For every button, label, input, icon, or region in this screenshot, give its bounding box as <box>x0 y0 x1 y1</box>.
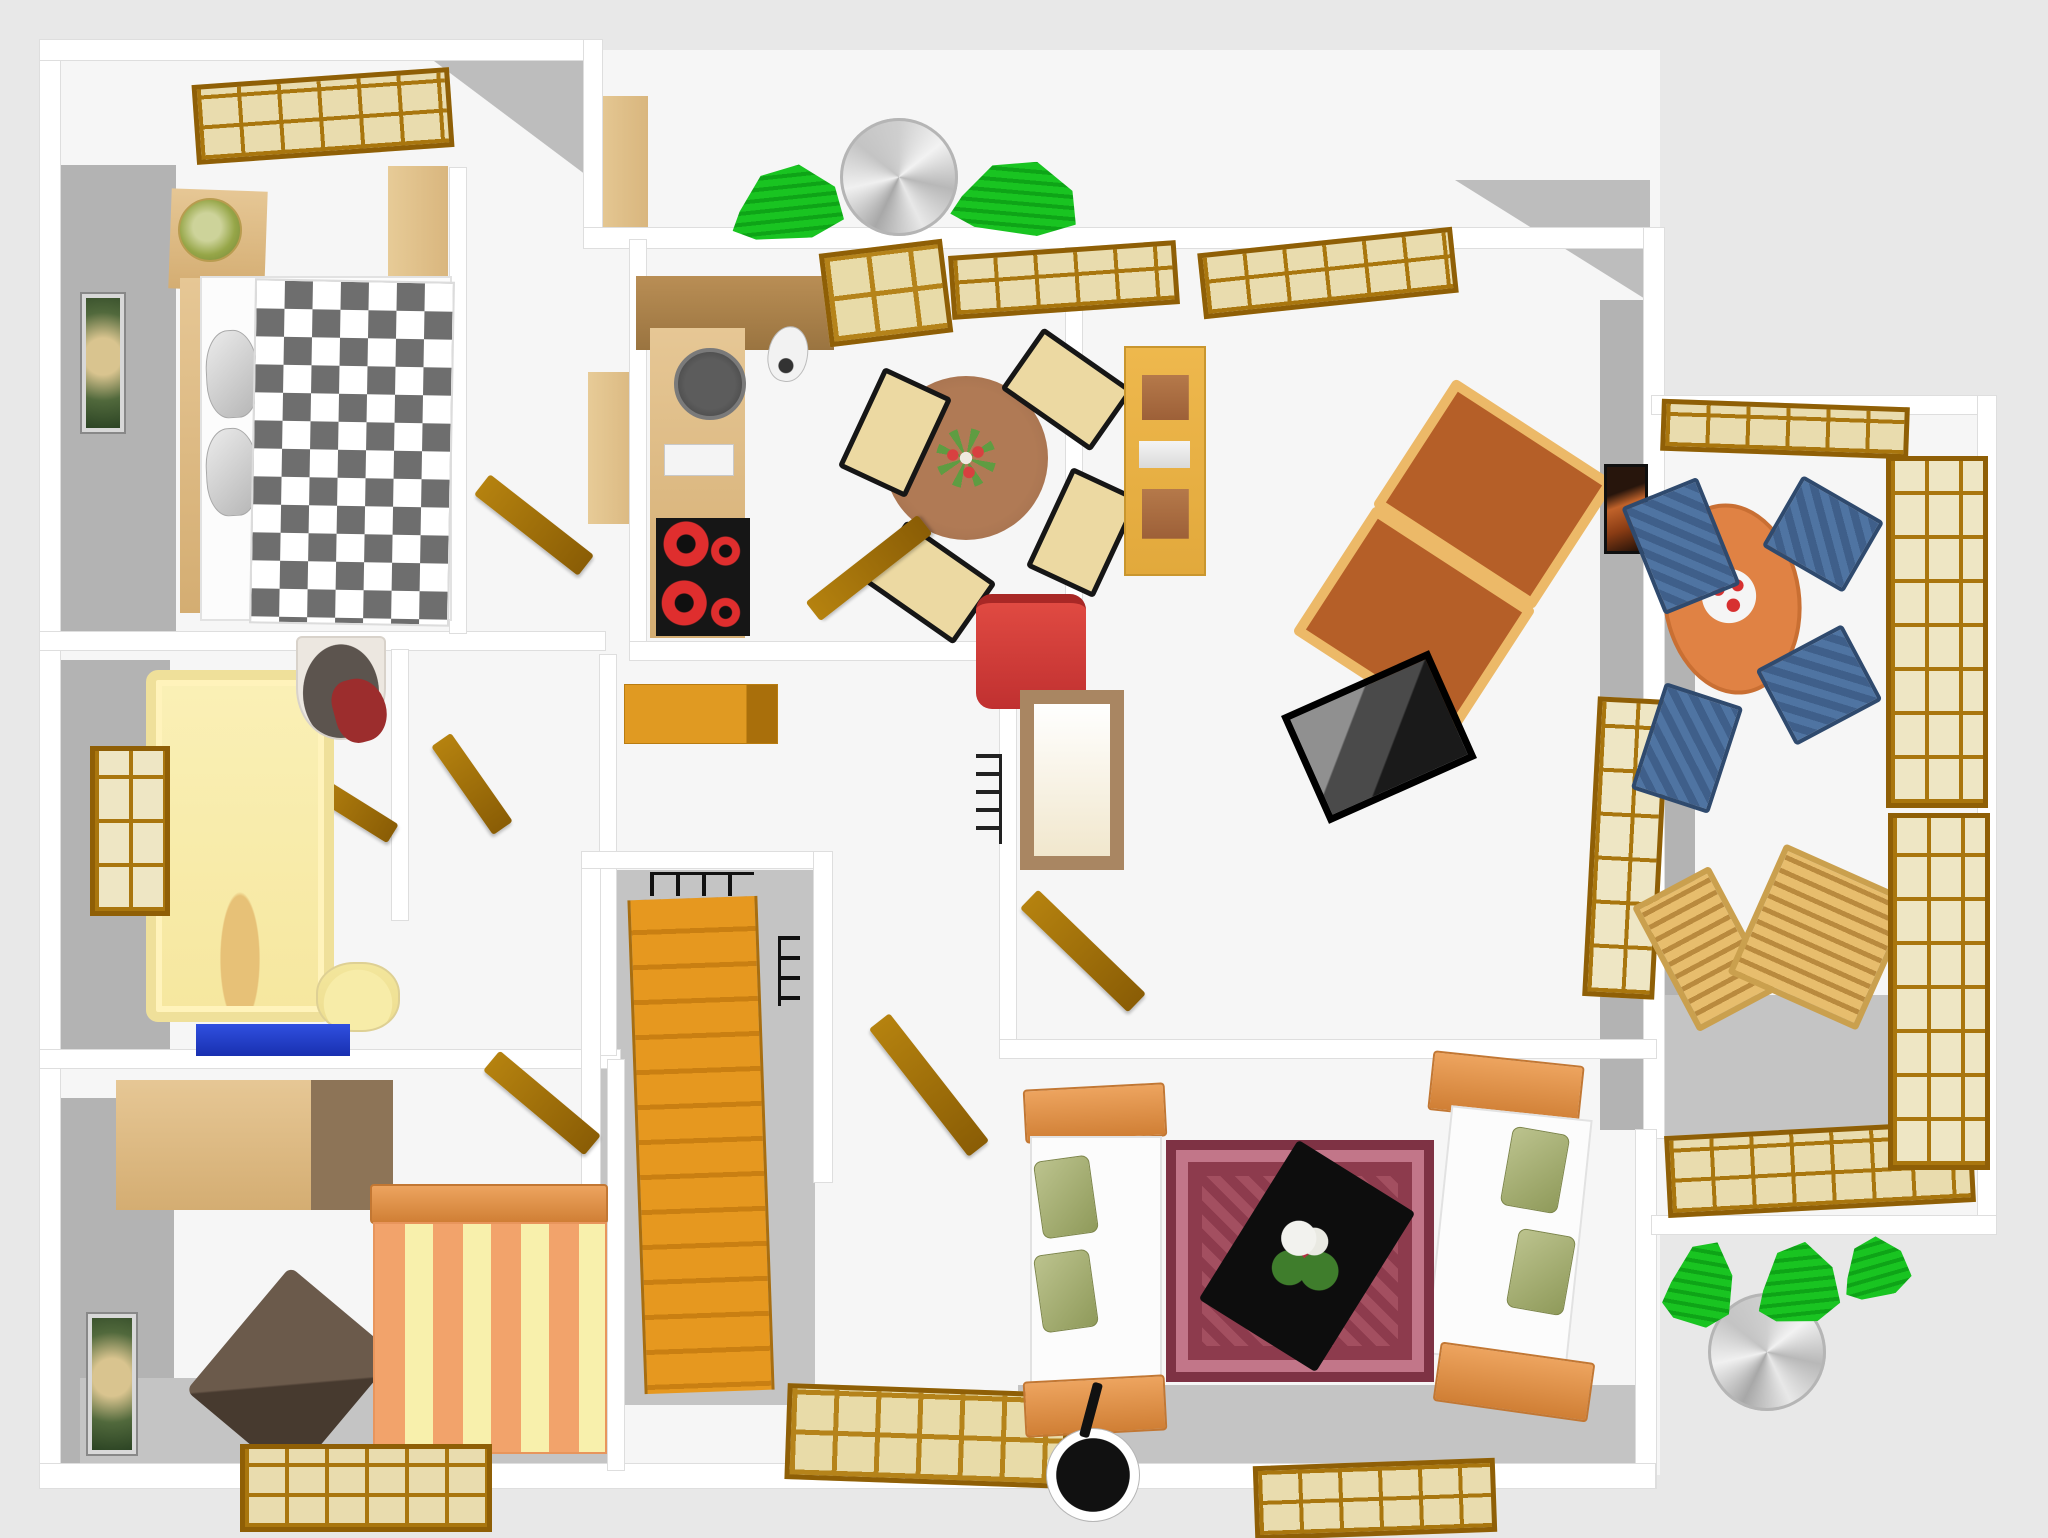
floor-plan-scene <box>0 0 2048 1538</box>
bedroom-bl-right-wall <box>608 1060 624 1470</box>
single-bed-headboard[interactable] <box>370 1184 608 1224</box>
wall-picture-bedroom-tl[interactable] <box>82 294 124 432</box>
living-bottom-wall <box>1000 1040 1656 1058</box>
wardrobe-light-section[interactable] <box>116 1080 311 1210</box>
porch-bottom-wall <box>1652 1216 1996 1234</box>
dining-table-centerpiece[interactable] <box>936 428 996 488</box>
radiator-living[interactable] <box>976 754 1002 844</box>
twin-bed-left-pillow-2[interactable] <box>1033 1248 1099 1333</box>
single-bed-striped-duvet[interactable] <box>373 1222 607 1454</box>
coffee-table-flower[interactable] <box>1266 1212 1344 1294</box>
porch-window-top[interactable] <box>1660 399 1910 460</box>
floor-lamp-shade[interactable] <box>1046 1428 1140 1522</box>
bath-mat[interactable] <box>196 1024 350 1056</box>
bedroom-bl-window[interactable] <box>240 1444 492 1532</box>
fireplace-alcove[interactable] <box>1020 690 1124 870</box>
toilet[interactable] <box>316 962 400 1032</box>
stair-railing-top[interactable] <box>650 872 754 896</box>
terrace-bush-bottom-2[interactable] <box>1752 1239 1842 1327</box>
terrace-bush-bottom-3[interactable] <box>1833 1230 1915 1306</box>
twin-bed-left-pillow-1[interactable] <box>1033 1154 1099 1239</box>
hall-living-wall <box>1000 650 1016 1050</box>
bedroom-bm-window[interactable] <box>1253 1458 1497 1538</box>
staircase-steps[interactable] <box>627 896 774 1394</box>
stair-enclosure-top-wall <box>582 852 832 868</box>
bathroom-right-wall <box>392 650 408 920</box>
hall-sideboard[interactable] <box>624 684 778 744</box>
porch-window-right-lower[interactable] <box>1888 813 1990 1170</box>
stove-cooktop[interactable] <box>656 518 750 636</box>
stereo-cabinet[interactable] <box>1124 346 1206 576</box>
outer-wall-top <box>40 40 602 60</box>
wall-picture-bedroom-bl[interactable] <box>88 1314 136 1454</box>
stair-enclosure-right-wall <box>814 852 832 1182</box>
terrace-metal-table-top[interactable] <box>840 118 958 236</box>
dishwasher-front[interactable] <box>664 444 734 476</box>
outer-wall-top-vertical <box>584 40 602 245</box>
front-door[interactable] <box>819 239 954 347</box>
kitchen-sink[interactable] <box>674 348 746 420</box>
double-bed-checkered-duvet[interactable] <box>249 278 455 626</box>
outer-wall-left <box>40 40 60 1488</box>
twin-bed-left-head[interactable] <box>1023 1082 1168 1143</box>
bathtub[interactable] <box>146 670 334 1022</box>
outer-wall-right-lower <box>1636 1130 1656 1488</box>
bathroom-window[interactable] <box>90 746 170 916</box>
outer-wall-right <box>1644 228 1664 1138</box>
stair-railing-right[interactable] <box>778 936 800 1006</box>
nightstand-plant[interactable] <box>178 198 242 262</box>
porch-glass-doors-right[interactable] <box>1886 456 1988 808</box>
